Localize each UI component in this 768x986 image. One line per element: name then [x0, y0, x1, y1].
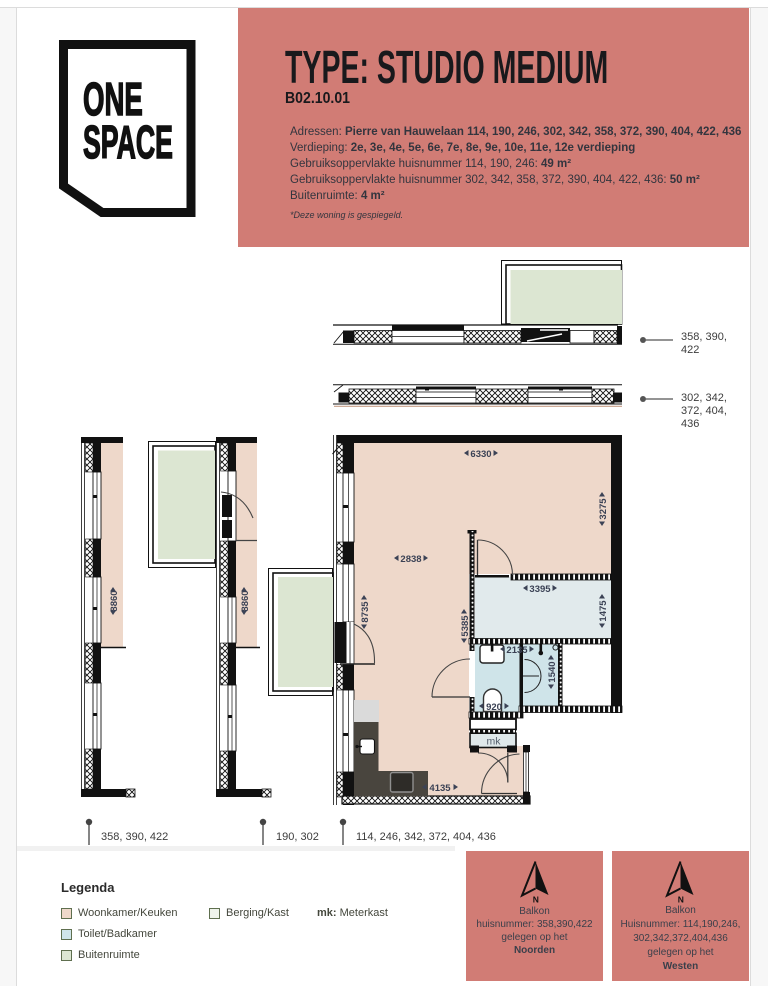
svg-text:1475: 1475 — [598, 600, 609, 622]
svg-text:3395: 3395 — [529, 584, 551, 595]
svg-text:N: N — [533, 895, 539, 905]
svg-text:8860: 8860 — [109, 590, 120, 611]
svg-text:114, 246, 342, 372, 404, 436: 114, 246, 342, 372, 404, 436 — [356, 831, 496, 843]
svg-text:4135: 4135 — [429, 783, 451, 794]
svg-text:SPACE: SPACE — [83, 116, 173, 167]
svg-text:358, 390,: 358, 390, — [681, 331, 727, 343]
svg-text:436: 436 — [681, 418, 699, 430]
svg-text:372, 404,: 372, 404, — [681, 405, 727, 417]
svg-text:N: N — [678, 895, 684, 905]
svg-text:6330: 6330 — [470, 449, 491, 460]
svg-text:190, 302: 190, 302 — [276, 831, 319, 843]
svg-text:5385: 5385 — [460, 615, 471, 637]
svg-text:2838: 2838 — [400, 554, 421, 565]
svg-text:8860: 8860 — [240, 590, 251, 611]
svg-text:8735: 8735 — [360, 601, 371, 623]
svg-text:920: 920 — [486, 702, 502, 713]
svg-text:302, 342,: 302, 342, — [681, 392, 727, 404]
svg-text:3275: 3275 — [598, 498, 609, 520]
svg-text:358, 390, 422: 358, 390, 422 — [101, 831, 168, 843]
svg-text:422: 422 — [681, 344, 699, 356]
svg-text:1540: 1540 — [547, 661, 558, 682]
svg-text:mk: mk — [487, 736, 502, 748]
svg-text:2135: 2135 — [506, 645, 528, 656]
